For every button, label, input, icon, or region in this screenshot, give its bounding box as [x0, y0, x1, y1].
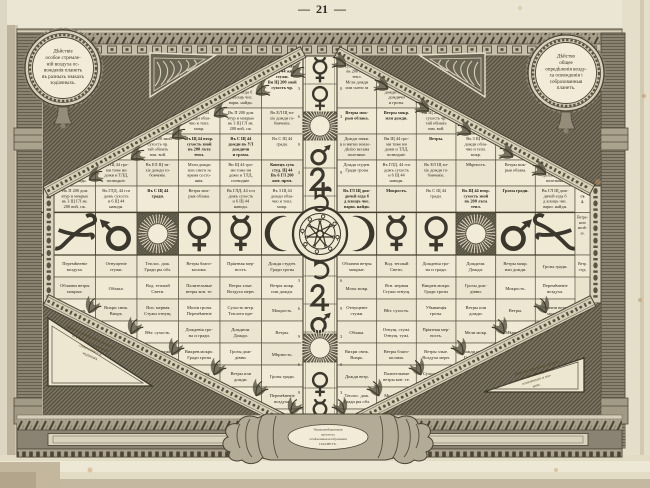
svg-text:Ветры.: Ветры. — [275, 330, 289, 335]
svg-text:Ветры благо-: Ветры благо- — [384, 349, 410, 354]
svg-text:Пріятная мер-: Пріятная мер- — [422, 327, 450, 332]
svg-text:грозы.: грозы. — [430, 311, 442, 316]
svg-text:Перемѣненіе: Перемѣненіе — [62, 261, 87, 266]
svg-text:зы и гради.: зы и гради. — [425, 267, 447, 272]
svg-text:ми тоже ни: ми тоже ни — [230, 167, 251, 172]
svg-text:желѣ-: желѣ- — [577, 226, 588, 230]
svg-text:Дожди.: Дожди. — [469, 267, 483, 272]
svg-text:Въ С Щ 44: Въ С Щ 44 — [230, 136, 252, 141]
svg-text:дичей егда б: дичей егда б — [544, 193, 568, 198]
svg-text:Дождя студен.: Дождя студен. — [343, 162, 370, 167]
svg-text:въ 200 лъта: въ 200 лъта — [465, 199, 489, 204]
svg-text:Грозы гради.: Грозы гради. — [270, 374, 295, 379]
svg-text:Ветры мок-: Ветры мок- — [505, 162, 527, 167]
svg-text:дожди.: дожди. — [469, 311, 483, 316]
svg-text:— 21 —: — 21 — — [297, 2, 347, 16]
svg-text:Въ Щ 44 втор.: Въ Щ 44 втор. — [462, 188, 490, 193]
svg-text:Ветры или: Ветры или — [230, 371, 251, 376]
svg-text:ного: ного — [579, 221, 586, 225]
svg-text:планетъ.: планетъ. — [557, 85, 576, 91]
svg-text:варш. найдн.: варш. найдн. — [229, 100, 253, 105]
svg-text:Дожди.: Дожди. — [234, 333, 248, 338]
svg-text:втур и мокрые: втур и мокрые — [227, 115, 254, 120]
svg-text:Гради грозы: Гради грозы — [187, 355, 211, 360]
svg-text:Перемѣненіе: Перемѣненіе — [187, 311, 212, 316]
svg-text:Стужи отнущ.: Стужи отнущ. — [383, 289, 410, 294]
svg-text:Воздуха мерн.: Воздуха мерн. — [422, 355, 450, 360]
svg-text:Отнущ. стужі.: Отнущ. стужі. — [383, 327, 410, 332]
svg-text:наводн.: наводн. — [234, 204, 248, 209]
svg-text:сухость чр.: сухость чр. — [271, 85, 293, 90]
svg-text:варш. найдн.: варш. найдн. — [543, 204, 567, 209]
svg-text:Мглы мокр.: Мглы мокр. — [345, 286, 368, 291]
svg-text:Дождичи.: Дождичи. — [231, 327, 250, 332]
svg-text:Мгли дожди: Мгли дожди — [188, 162, 211, 167]
svg-text:воздуха.: воздуха. — [274, 399, 290, 404]
svg-text:въ 3 Щ ГЛ зм.: въ 3 Щ ГЛ зм. — [62, 199, 88, 204]
svg-text:или снеги за: или снеги за — [345, 85, 368, 90]
svg-text:Ясн. мерная: Ясн. мерная — [385, 283, 409, 288]
svg-text:бовченіе.: бовченіе. — [274, 121, 291, 126]
svg-text:мокрые.: мокрые. — [349, 267, 365, 272]
svg-text:Гради ры обл.: Гради ры обл. — [343, 399, 370, 404]
svg-text:Ветры злые.: Ветры злые. — [424, 349, 448, 354]
svg-text:дожъ сухость: дожъ сухость — [384, 167, 409, 172]
svg-text:Въ П 200 дож: Въ П 200 дож — [62, 188, 88, 193]
svg-text:Мели мокр.: Мели мокр. — [465, 330, 488, 335]
svg-text:ность.: ность. — [430, 333, 442, 338]
svg-text:Ветре-: Ветре- — [577, 215, 589, 219]
svg-text:хіе дожди го-: хіе дожди го- — [424, 167, 449, 172]
svg-text:ность.: ность. — [235, 267, 247, 272]
svg-text:зы и гради.: зы и гради. — [188, 333, 210, 338]
svg-text:Ветры мокр.: Ветры мокр. — [270, 283, 294, 288]
svg-text:рыя облака.: рыя облака. — [188, 193, 210, 198]
svg-text:ми тоже ни: ми тоже ни — [106, 167, 127, 172]
svg-text:Въ Щ 44 втор.: Въ Щ 44 втор. — [185, 136, 213, 141]
svg-text:и грозы.: и грозы. — [233, 152, 249, 157]
svg-text:позводніе.: позводніе. — [387, 152, 406, 157]
svg-text:мокр.: мокр. — [194, 126, 204, 131]
svg-text:Дожди затяж.: Дожди затяж. — [344, 136, 369, 141]
svg-text:зодіачныхъ.: зодіачныхъ. — [50, 80, 75, 86]
svg-text:д влощъ чис.: д влощъ чис. — [344, 199, 369, 204]
svg-text:Въ ЕЛ Щ ти-: Въ ЕЛ Щ ти- — [424, 162, 449, 167]
svg-text:дожди.: дожди. — [234, 377, 248, 382]
svg-text:мокр.: мокр. — [471, 152, 481, 157]
svg-text:стужи.: стужи. — [276, 74, 289, 79]
svg-text:Викрен.мокро.: Викрен.мокро. — [185, 349, 214, 354]
svg-text:Ветры мок-: Ветры мок- — [345, 110, 368, 115]
svg-text:Ветры или: Ветры или — [466, 305, 487, 310]
svg-text:или дожди.: или дожди. — [271, 289, 293, 294]
svg-text:Дождичи.: Дождичи. — [466, 261, 485, 266]
svg-text:Вѣт. сухость.: Вѣт. сухость. — [145, 330, 170, 335]
svg-text:стужи.: стужи. — [350, 311, 363, 316]
svg-text:варш. найдн.: варш. найдн. — [344, 204, 370, 209]
svg-text:стужи.: стужи. — [110, 267, 123, 272]
svg-text:Конецъ сухъ: Конецъ сухъ — [270, 162, 295, 167]
svg-text:дождичи: дождичи — [232, 147, 250, 152]
svg-text:зо.: зо. — [580, 232, 584, 236]
svg-text:собразованныя: собразованныя — [550, 78, 583, 85]
svg-text:воздуха.: воздуха. — [67, 267, 83, 272]
svg-text:особое стремле-: особое стремле- — [45, 54, 81, 61]
svg-text:Мокрость.: Мокрость. — [505, 286, 525, 291]
svg-text:Грозы дож-: Грозы дож- — [230, 349, 252, 354]
svg-text:дожди въ УЛ: дожди въ УЛ — [228, 141, 254, 146]
svg-text:Ветры.: Ветры. — [509, 308, 523, 313]
svg-text:Отнущеніе: Отнущеніе — [106, 261, 127, 266]
svg-text:тепл.: тепл. — [194, 152, 204, 157]
svg-text:Убыванція: Убыванція — [426, 305, 448, 310]
svg-text:опредѣленія возду-: опредѣленія возду- — [545, 65, 587, 72]
svg-text:дожъ сухость: дожъ сухость — [228, 193, 253, 198]
svg-text:Ветры злые.: Ветры злые. — [229, 283, 253, 288]
svg-text:бовченіе.: бовченіе. — [428, 173, 445, 178]
svg-text:Вихри свеж.: Вихри свеж. — [104, 305, 128, 310]
svg-text:Теплос. дож.: Теплос. дож. — [345, 393, 370, 398]
svg-text:чно и тепл.: чно и тепл. — [189, 121, 210, 126]
svg-text:Въ С Щ 44: Въ С Щ 44 — [272, 136, 293, 141]
svg-text:въ 200 лъта: въ 200 лъта — [188, 147, 212, 152]
svg-text:тай обінать: тай обінать — [426, 121, 447, 126]
svg-text:Облака.: Облака. — [349, 330, 364, 335]
svg-text:Дожди ветр.: Дожди ветр. — [345, 374, 369, 379]
svg-text:хіе дожди го-: хіе дожди го- — [270, 115, 295, 120]
svg-text:Мѣрность.: Мѣрность. — [272, 352, 293, 357]
svg-text:и грозы.: и грозы. — [389, 100, 404, 105]
svg-text:Ви Щ 44 гро-: Ви Щ 44 гро- — [228, 162, 253, 167]
svg-text:ха освожденія і: ха освожденія і — [549, 73, 583, 79]
svg-text:Ветры.: Ветры. — [429, 136, 443, 141]
svg-text:янія.: янія. — [195, 178, 204, 183]
svg-text:мокр.: мокр. — [277, 204, 287, 209]
svg-text:Гради грозы: Гради грозы — [424, 289, 448, 294]
svg-text:ній воздуха ос-: ній воздуха ос- — [47, 60, 80, 67]
svg-text:Гради грозы: Гради грозы — [270, 267, 294, 272]
svg-text:или дожди.: или дожди. — [505, 267, 527, 272]
svg-text:тепл.: тепл. — [471, 204, 481, 209]
svg-text:и 6 Щ 44: и 6 Щ 44 — [108, 199, 125, 204]
svg-text:бовченіе.: бовченіе. — [149, 173, 166, 178]
svg-text:зим. вой.: зим. вой. — [428, 126, 445, 131]
svg-text:рыя облака.: рыя облака. — [505, 167, 527, 172]
svg-text:или дожди.: или дожди. — [386, 115, 408, 120]
svg-text:Облачни ветры: Облачни ветры — [60, 283, 89, 288]
svg-text:Ветры мок-: Ветры мок- — [188, 188, 210, 193]
svg-text:ветры кон. те.: ветры кон. те. — [383, 377, 410, 382]
svg-text:студ. Щ 44: студ. Щ 44 — [272, 167, 293, 172]
svg-text:Викрен.мокро.: Викрен.мокро. — [422, 283, 451, 288]
svg-text:Дождя студен.: Дождя студен. — [268, 261, 296, 266]
svg-text:воздуха.: воздуха. — [547, 289, 563, 294]
svg-text:дождичи: дождичи — [388, 95, 405, 100]
svg-text:въ 3 Щ ГЛ зм.: въ 3 Щ ГЛ зм. — [228, 121, 254, 126]
svg-text:и мягки земле-: и мягки земле- — [343, 141, 371, 146]
svg-text:Дождевія гро-: Дождевія гро- — [186, 327, 214, 332]
svg-text:Облачни ветры: Облачни ветры — [342, 261, 371, 266]
svg-text:Вихрь.: Вихрь. — [110, 311, 123, 316]
svg-text:дичей егда б: дичей егда б — [345, 193, 370, 198]
svg-text:Палительные: Палительные — [186, 283, 212, 288]
svg-text:Ветр.: Ветр. — [578, 262, 587, 266]
svg-text:полезные.: полезные. — [348, 152, 367, 157]
svg-text:Въ С Щ 44: Въ С Щ 44 — [426, 188, 447, 193]
svg-text:время состо-: время состо- — [187, 173, 211, 178]
svg-text:общее: общее — [559, 59, 573, 66]
svg-text:Вихрь.: Вихрь. — [350, 355, 363, 360]
svg-text:Въ ЕЛ Щ ти-: Въ ЕЛ Щ ти- — [270, 110, 295, 115]
svg-text:Теплос. дож.: Теплос. дож. — [145, 261, 170, 266]
svg-text:тепл.: тепл. — [352, 74, 361, 79]
svg-text:въ разныхъ знакахъ: въ разныхъ знакахъ — [42, 74, 84, 80]
svg-text:Предъизвѣщающая: Предъизвѣщающая — [314, 428, 343, 432]
svg-text:Мгли дожди: Мгли дожди — [345, 80, 368, 85]
svg-text:чно и тепл.: чно и тепл. — [272, 199, 293, 204]
svg-text:позводніе.: позводніе. — [107, 178, 126, 183]
svg-text:гради.: гради. — [152, 193, 164, 198]
svg-text:Облака.: Облака. — [109, 286, 124, 291]
svg-text:Въ ЕЛ Щ ти-: Въ ЕЛ Щ ти- — [146, 162, 171, 167]
svg-text:ми тоже ни: ми тоже ни — [386, 141, 407, 146]
svg-text:Гради ры обл.: Гради ры обл. — [144, 267, 171, 272]
svg-text:и 6 Щ 44: и 6 Щ 44 — [233, 199, 250, 204]
svg-text:Отнущ. тужі.: Отнущ. тужі. — [384, 333, 409, 338]
svg-text:Въ П 200 дож: Въ П 200 дож — [228, 110, 254, 115]
svg-text:Вод. теплый: Вод. теплый — [385, 261, 410, 266]
svg-text:наводн.: наводн. — [390, 178, 404, 183]
svg-text:отмѣченныя изображенія: отмѣченныя изображенія — [309, 437, 347, 441]
svg-text:Въ С Щ 44: Въ С Щ 44 — [147, 188, 169, 193]
svg-text:Ветры мокр.: Ветры мокр. — [384, 110, 409, 115]
svg-text:Грозы дож-: Грозы дож- — [465, 283, 487, 288]
svg-text:ПЛАНЕТЪ.: ПЛАНЕТЪ. — [319, 442, 337, 446]
svg-text:Ясн. мерная: Ясн. мерная — [146, 305, 170, 310]
svg-text:Стужи отнущ.: Стужи отнущ. — [144, 311, 171, 316]
svg-text:дожъ сухость: дожъ сухость — [104, 193, 129, 198]
svg-text:Ви Щ 44 гро-: Ви Щ 44 гро- — [384, 136, 409, 141]
svg-text:Ветры мокр.: Ветры мокр. — [503, 261, 527, 266]
svg-text:Теплота пре-: Теплота пре- — [228, 311, 253, 316]
svg-text:Палительные: Палительные — [384, 371, 410, 376]
svg-text:Въ ГЛ Щ дож-: Въ ГЛ Щ дож- — [343, 188, 371, 193]
svg-text:Въ 6 ГЛ 200: Въ 6 ГЛ 200 — [271, 173, 294, 178]
svg-text:Ветры благо-: Ветры благо- — [186, 261, 212, 266]
svg-text:Воздуха мерн.: Воздуха мерн. — [227, 289, 255, 294]
svg-text:прогноза: прогноза — [321, 432, 335, 436]
svg-text:гради.: гради. — [276, 141, 288, 146]
svg-text:Грозы гради.: Грозы гради. — [543, 264, 568, 269]
svg-text:Вѣт. сухость.: Вѣт. сухость. — [384, 308, 409, 313]
svg-text:Пріятная мер-: Пріятная мер- — [227, 261, 255, 266]
svg-text:Свети.: Свети. — [390, 267, 403, 272]
svg-text:сухость зной: сухость зной — [187, 141, 212, 146]
svg-text:хіе дожди го-: хіе дожди го- — [146, 167, 171, 172]
svg-text:студ.: студ. — [579, 268, 587, 272]
svg-text:Въ ГЛ Щ дож-: Въ ГЛ Щ дож- — [542, 188, 569, 193]
svg-text:Дождевія гро-: Дождевія гро- — [422, 261, 450, 266]
svg-text:зим. вой.: зим. вой. — [150, 152, 167, 157]
svg-text:Моліи грозы: Моліи грозы — [187, 305, 212, 310]
svg-text:Перемѣненіе: Перемѣненіе — [543, 283, 568, 288]
svg-text:дівни.: дівни. — [470, 289, 482, 294]
svg-text:косима.: косима. — [192, 267, 207, 272]
svg-text:тай обінать: тай обінать — [147, 147, 168, 152]
svg-text:Гради грозы: Гради грозы — [345, 167, 368, 172]
svg-text:и 6 Щ 44: и 6 Щ 44 — [388, 173, 405, 178]
svg-text:Грозы гради.: Грозы гради. — [503, 188, 529, 193]
svg-text:Свети.: Свети. — [151, 289, 164, 294]
svg-text:или снеги за: или снеги за — [188, 167, 211, 172]
svg-text:Мокрость.: Мокрость. — [386, 188, 407, 193]
svg-text:мокрые.: мокрые. — [67, 289, 83, 294]
svg-text:Вихри свеж.: Вихри свеж. — [345, 349, 369, 354]
svg-text:д.: д. — [581, 200, 584, 204]
svg-text:наводн.: наводн. — [109, 204, 123, 209]
svg-text:ветры кон. те.: ветры кон. те. — [186, 289, 213, 294]
svg-text:позводніе.: позводніе. — [231, 178, 250, 183]
svg-text:Сухость ветр.: Сухость ветр. — [228, 305, 255, 310]
svg-text:Въ 3 Щ 44: Въ 3 Щ 44 — [273, 188, 293, 193]
svg-text:Мѣрность.: Мѣрность. — [466, 162, 486, 167]
svg-text:Вод. теплый: Вод. теплый — [146, 283, 171, 288]
svg-text:гради.: гради. — [430, 193, 442, 198]
svg-text:Дѣйствіе: Дѣйствіе — [53, 48, 73, 55]
svg-text:дѣлію весьма: дѣлію весьма — [344, 147, 369, 152]
svg-text:рыя облака.: рыя облака. — [345, 115, 369, 120]
svg-text:Отнущеніе: Отнущеніе — [346, 305, 367, 310]
svg-text:сухость зной: сухость зной — [464, 193, 489, 198]
svg-text:дожди обла-: дожди обла- — [465, 141, 488, 146]
svg-text:Мокрость.: Мокрость. — [272, 308, 292, 313]
svg-text:чно и тепл.: чно и тепл. — [466, 147, 487, 152]
svg-text:д влощъ чис.: д влощъ чис. — [543, 199, 567, 204]
svg-text:Ви Щ 200 зной: Ви Щ 200 зной — [268, 80, 297, 85]
svg-text:Дѣйство: Дѣйство — [557, 53, 576, 60]
svg-text:дожди обла-: дожди обла- — [271, 193, 294, 198]
svg-text:вожденія планетъ: вожденія планетъ — [44, 68, 83, 74]
svg-text:косима.: косима. — [389, 355, 404, 360]
svg-text:втур и мокрые: втур и мокрые — [61, 193, 88, 198]
svg-text:дівни.: дівни. — [235, 355, 247, 360]
svg-text:жит. прем.: жит. прем. — [272, 178, 293, 183]
